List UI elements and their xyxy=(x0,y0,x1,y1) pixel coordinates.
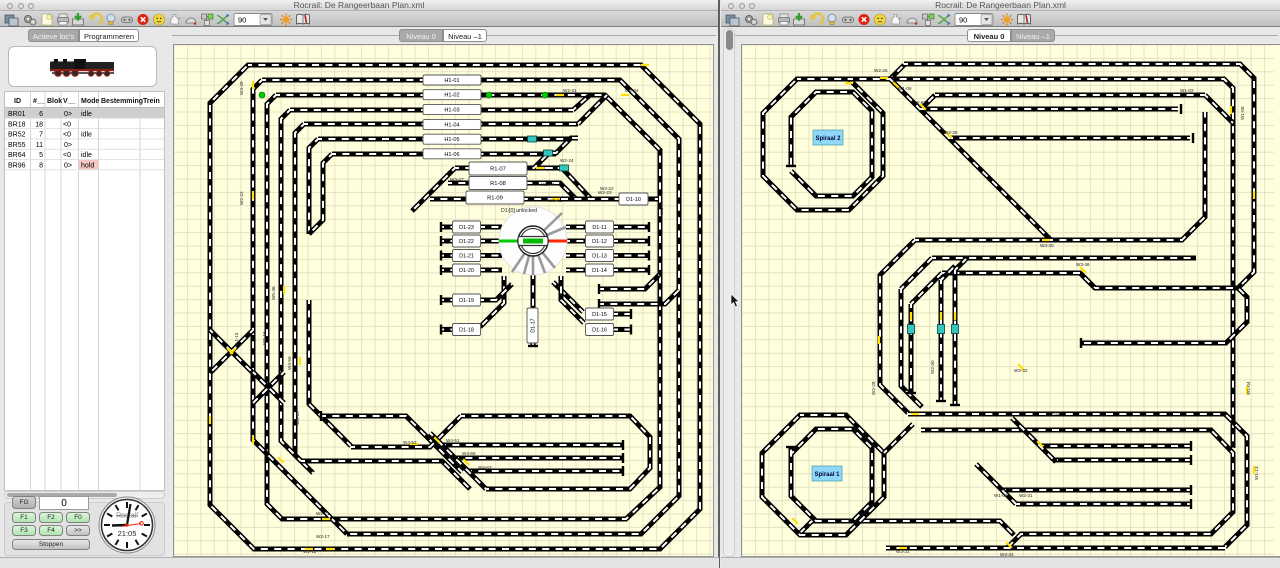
svg-text:21:05: 21:05 xyxy=(118,529,137,538)
svg-text:90: 90 xyxy=(959,15,967,24)
svg-text:90: 90 xyxy=(238,15,246,24)
svg-text:BR55: BR55 xyxy=(8,142,26,149)
svg-text:#__: #__ xyxy=(33,98,45,105)
svg-text:idle: idle xyxy=(81,132,92,139)
svg-text:6: 6 xyxy=(39,111,43,118)
svg-text:8: 8 xyxy=(39,163,43,170)
svg-text:<0: <0 xyxy=(63,121,71,128)
svg-text:hold: hold xyxy=(81,163,94,170)
svg-text:5: 5 xyxy=(39,152,43,159)
svg-text:7: 7 xyxy=(39,132,43,139)
svg-text:BR01: BR01 xyxy=(8,111,26,118)
svg-text:ID: ID xyxy=(14,98,21,105)
svg-text:BR52: BR52 xyxy=(8,132,26,139)
svg-text:0>: 0> xyxy=(64,142,72,149)
svg-text:BR64: BR64 xyxy=(8,152,26,159)
svg-text:<0: <0 xyxy=(63,152,71,159)
svg-text:0>: 0> xyxy=(64,111,72,118)
svg-text:11: 11 xyxy=(36,142,43,149)
svg-text:0>: 0> xyxy=(64,163,72,170)
svg-text:V__: V__ xyxy=(63,98,76,105)
svg-text:idle: idle xyxy=(81,111,92,118)
svg-text:<0: <0 xyxy=(63,132,71,139)
svg-text:Trein: Trein xyxy=(143,98,160,105)
svg-text:BR96: BR96 xyxy=(8,163,26,170)
svg-text:BR18: BR18 xyxy=(8,121,26,128)
svg-text:Bestemming: Bestemming xyxy=(101,98,143,105)
svg-text:Blok: Blok xyxy=(47,98,62,105)
svg-text:Mode: Mode xyxy=(81,98,99,105)
svg-text:18: 18 xyxy=(35,121,43,128)
svg-text:idle: idle xyxy=(81,152,92,159)
